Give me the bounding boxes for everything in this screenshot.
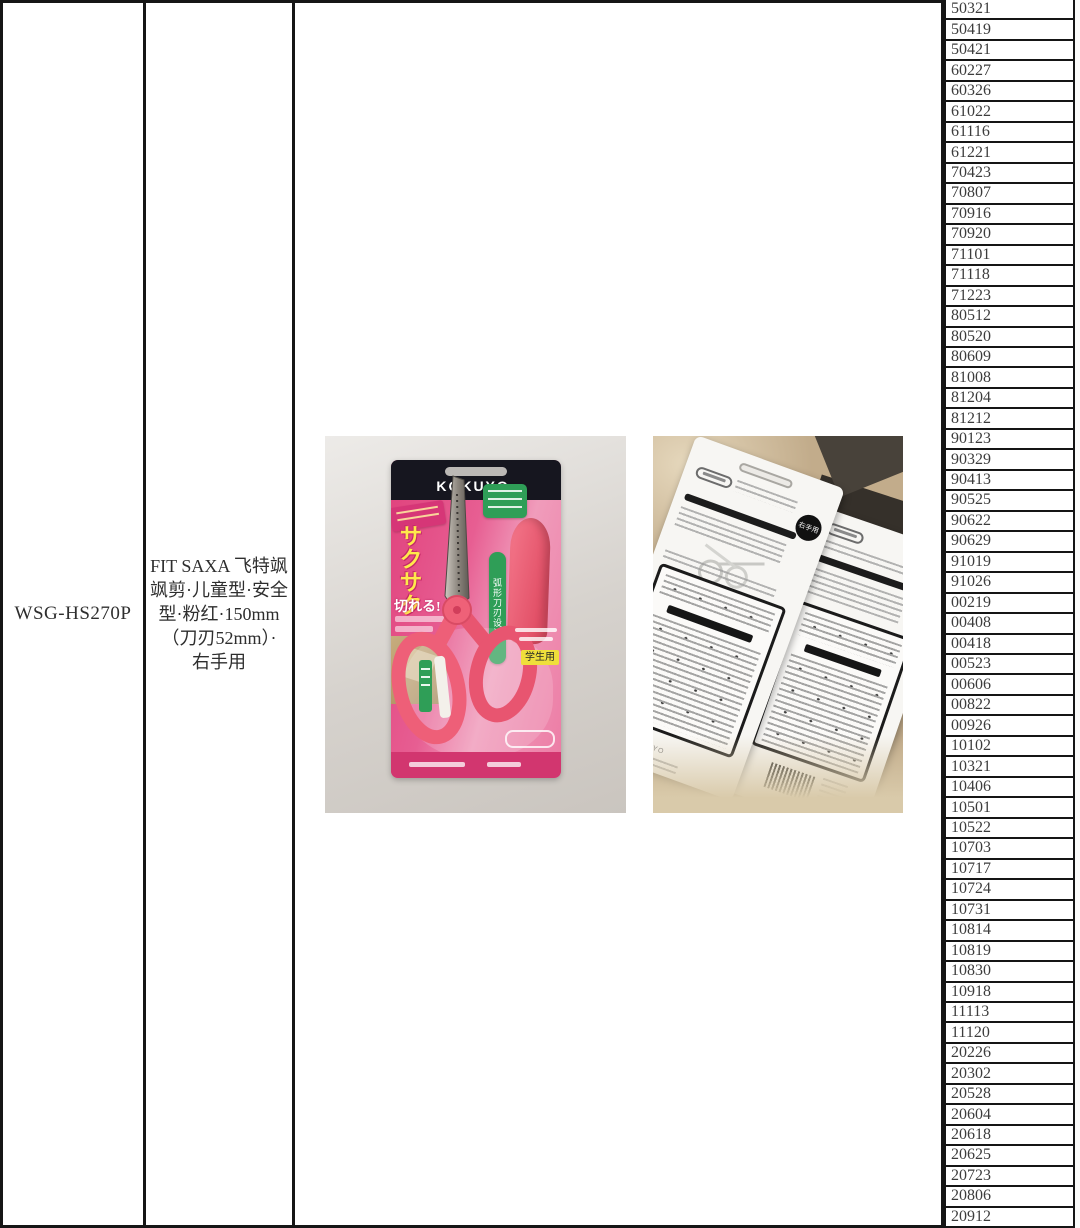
date-code: 70916 <box>951 205 991 223</box>
date-code: 20302 <box>951 1065 991 1083</box>
date-code-cell: 90629 <box>944 530 1075 552</box>
date-code-cell: 10814 <box>944 919 1075 941</box>
date-code-cell: 00418 <box>944 633 1075 655</box>
date-code: 90525 <box>951 491 991 509</box>
date-code: 70423 <box>951 164 991 182</box>
date-code: 20806 <box>951 1187 991 1205</box>
date-code: 50419 <box>951 21 991 39</box>
date-code: 11120 <box>951 1024 990 1042</box>
date-code-cell: 60326 <box>944 80 1075 102</box>
date-code-cell: 11120 <box>944 1021 1075 1043</box>
product-description: FIT SAXA 飞特飒 飒剪·儿童型·安全 型·粉红·150mm （刀刃52m… <box>150 554 288 674</box>
student-badge: 学生用 <box>521 650 559 665</box>
date-code-cell: 10102 <box>944 735 1075 757</box>
date-codes-column: 50321 50419 50421 60227 60326 61022 61 <box>944 0 1075 1228</box>
date-code-cell: 80512 <box>944 305 1075 327</box>
date-code: 90123 <box>951 430 991 448</box>
date-code: 20912 <box>951 1208 991 1226</box>
date-code-cell: 70807 <box>944 182 1075 204</box>
date-code: 10102 <box>951 737 991 755</box>
date-code-cell: 20723 <box>944 1165 1075 1187</box>
date-code-cell: 10724 <box>944 878 1075 900</box>
date-code: 91026 <box>951 573 991 591</box>
date-code: 80520 <box>951 328 991 346</box>
date-code-cell: 00926 <box>944 714 1075 736</box>
date-code-cell: 70916 <box>944 203 1075 225</box>
date-code-cell: 10918 <box>944 981 1075 1003</box>
date-code-cell: 70423 <box>944 162 1075 184</box>
date-code: 10321 <box>951 758 991 776</box>
date-code-cell: 60227 <box>944 59 1075 81</box>
date-code: 00822 <box>951 696 991 714</box>
date-code: 90629 <box>951 532 991 550</box>
date-code: 80609 <box>951 348 991 366</box>
date-code: 10814 <box>951 921 991 939</box>
date-code: 20625 <box>951 1146 991 1164</box>
date-code-cell: 20618 <box>944 1124 1075 1146</box>
date-code: 80512 <box>951 307 991 325</box>
date-code-cell: 10321 <box>944 755 1075 777</box>
date-code-cell: 20625 <box>944 1144 1075 1166</box>
date-code: 00606 <box>951 676 991 694</box>
date-code-cell: 90123 <box>944 428 1075 450</box>
model-pill <box>694 465 734 489</box>
date-code-cell: 90622 <box>944 510 1075 532</box>
date-code: 90622 <box>951 512 991 530</box>
back-package-photo: 右手用 KOKUYO <box>653 436 903 813</box>
date-code-cell: 10731 <box>944 899 1075 921</box>
date-code: 11113 <box>951 1003 989 1021</box>
date-code: 60227 <box>951 62 991 80</box>
card-bottom-band <box>391 752 561 778</box>
date-code-cell: 20912 <box>944 1206 1075 1228</box>
date-code-cell: 80520 <box>944 326 1075 348</box>
date-code: 20723 <box>951 1167 991 1185</box>
date-code-cell: 10703 <box>944 837 1075 859</box>
date-code: 10724 <box>951 880 991 898</box>
date-code: 20226 <box>951 1044 991 1062</box>
product-photos-cell: KOKUYO. サクサク 切れる! 弧形刀刃设计 <box>292 0 944 1228</box>
date-code: 81204 <box>951 389 991 407</box>
blister-card: KOKUYO. サクサク 切れる! 弧形刀刃设计 <box>391 460 561 778</box>
date-code: 91019 <box>951 553 991 571</box>
date-code-cell: 50421 <box>944 39 1075 61</box>
date-code-cell: 10819 <box>944 940 1075 962</box>
date-code: 20604 <box>951 1106 991 1124</box>
date-code-cell: 10501 <box>944 796 1075 818</box>
date-code-cell: 00523 <box>944 653 1075 675</box>
date-code: 61221 <box>951 144 991 162</box>
date-code: 50321 <box>951 0 991 18</box>
date-code: 60326 <box>951 82 991 100</box>
date-code-cell: 90329 <box>944 448 1075 470</box>
date-code-cell: 00606 <box>944 673 1075 695</box>
front-package-photo: KOKUYO. サクサク 切れる! 弧形刀刃设计 <box>325 436 626 813</box>
date-code-cell: 61022 <box>944 100 1075 122</box>
date-code: 10918 <box>951 983 991 1001</box>
date-code: 10830 <box>951 962 991 980</box>
date-code: 61022 <box>951 103 991 121</box>
size-pill-outline <box>505 730 555 748</box>
date-code: 10522 <box>951 819 991 837</box>
date-code: 71118 <box>951 266 990 284</box>
product-code: WSG-HS270P <box>15 603 132 625</box>
date-code: 90413 <box>951 471 991 489</box>
date-code-cell: 50321 <box>944 0 1075 20</box>
fine-print-bar <box>515 628 557 632</box>
date-code: 10703 <box>951 839 991 857</box>
date-code: 00219 <box>951 594 991 612</box>
hand-use-badge: 右手用 <box>792 511 825 544</box>
date-code-cell: 81212 <box>944 407 1075 429</box>
date-code-cell: 20226 <box>944 1042 1075 1064</box>
date-code: 20528 <box>951 1085 991 1103</box>
date-code: 00523 <box>951 655 991 673</box>
date-code: 61116 <box>951 123 990 141</box>
date-code: 90329 <box>951 451 991 469</box>
date-code: 20618 <box>951 1126 991 1144</box>
date-code-cell: 10717 <box>944 858 1075 880</box>
date-code-cell: 10406 <box>944 776 1075 798</box>
date-code: 81008 <box>951 369 991 387</box>
date-code-cell: 81008 <box>944 366 1075 388</box>
date-code-cell: 71223 <box>944 285 1075 307</box>
date-code: 70807 <box>951 184 991 202</box>
recall-table-page: WSG-HS270P FIT SAXA 飞特飒 飒剪·儿童型·安全 型·粉红·1… <box>0 0 1080 1228</box>
date-code: 81212 <box>951 410 991 428</box>
product-code-cell: WSG-HS270P <box>0 0 146 1228</box>
date-code-cell: 81204 <box>944 387 1075 409</box>
date-code: 50421 <box>951 41 991 59</box>
date-code: 00418 <box>951 635 991 653</box>
date-code-cell: 20302 <box>944 1062 1075 1084</box>
date-code-cell: 61116 <box>944 121 1075 143</box>
date-code-cell: 61221 <box>944 141 1075 163</box>
date-code-cell: 00408 <box>944 612 1075 634</box>
date-code: 70920 <box>951 225 991 243</box>
fine-print-bar <box>519 637 553 641</box>
date-code-cell: 20604 <box>944 1103 1075 1125</box>
date-code-cell: 00822 <box>944 694 1075 716</box>
date-code-cell: 70920 <box>944 223 1075 245</box>
date-code: 10406 <box>951 778 991 796</box>
date-code-cell: 11113 <box>944 1001 1075 1023</box>
date-code: 10717 <box>951 860 991 878</box>
date-code: 10819 <box>951 942 991 960</box>
date-code-cell: 00219 <box>944 592 1075 614</box>
product-description-cell: FIT SAXA 飞特飒 飒剪·儿童型·安全 型·粉红·150mm （刀刃52m… <box>143 0 295 1228</box>
date-code: 00926 <box>951 717 991 735</box>
date-code-cell: 91026 <box>944 571 1075 593</box>
date-code-cell: 50419 <box>944 18 1075 40</box>
date-code-cell: 10830 <box>944 960 1075 982</box>
photo-highlight <box>653 735 903 813</box>
date-code-cell: 90525 <box>944 489 1075 511</box>
date-code: 10731 <box>951 901 991 919</box>
date-code-cell: 71101 <box>944 244 1075 266</box>
date-code-cell: 91019 <box>944 551 1075 573</box>
date-code-cell: 20806 <box>944 1185 1075 1207</box>
date-code-cell: 80609 <box>944 346 1075 368</box>
date-code: 71101 <box>951 246 990 264</box>
date-code: 71223 <box>951 287 991 305</box>
date-code: 00408 <box>951 614 991 632</box>
date-code: 10501 <box>951 799 991 817</box>
date-code-cell: 10522 <box>944 817 1075 839</box>
date-code-cell: 20528 <box>944 1083 1075 1105</box>
date-code-cell: 71118 <box>944 264 1075 286</box>
date-code-cell: 90413 <box>944 469 1075 491</box>
